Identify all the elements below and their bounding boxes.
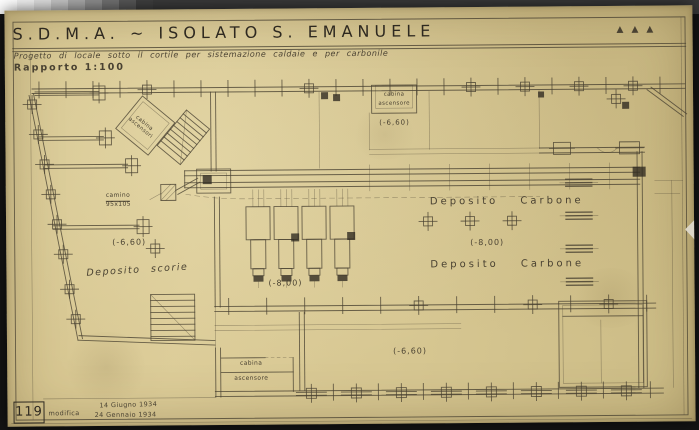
level-label-upper-court: (-6,60) — [379, 120, 410, 128]
boiler — [302, 189, 327, 287]
left-wall — [23, 82, 215, 346]
drawing-title: S.D.M.A. ~ ISOLATO S. EMANUELE — [12, 22, 435, 43]
top-elevator-room — [371, 85, 416, 113]
sheet-number-box: 119 — [13, 401, 44, 423]
stairs-top-left — [157, 110, 209, 165]
room-label-deposito-carbone-upper: Deposito Carbone — [430, 195, 584, 207]
revision-label: modifica — [49, 410, 80, 417]
hall-walls — [211, 92, 221, 348]
level-label-lower-court: (-6,60) — [393, 347, 427, 356]
boiler — [246, 190, 271, 288]
drawing-paper: S.D.M.A. ~ ISOLATO S. EMANUELE ▲▲▲ Proge… — [4, 5, 695, 426]
room-label-cabina-top: cabina — [373, 91, 415, 97]
plan-layer: S.D.M.A. ~ ISOLATO S. EMANUELE ▲▲▲ Proge… — [4, 5, 695, 426]
level-label-scorie: (-6,60) — [112, 239, 146, 248]
level-label-carbone: (-8,00) — [470, 239, 504, 248]
room-label-ascensore-top: ascensore — [373, 100, 415, 106]
coal-deposit-area — [369, 87, 689, 390]
boilers-group — [246, 189, 356, 288]
bottom-right-room — [559, 301, 648, 388]
border-frame — [8, 17, 691, 424]
bottom-elevator-room — [216, 347, 294, 397]
date-original: 14 Giugno 1934 — [99, 401, 157, 410]
scanned-drawing-photo: { "photo": { "background": "#141414", "t… — [0, 0, 699, 430]
room-label-cabina-bottom: cabina — [225, 361, 277, 368]
date-revision: 24 Gennaio 1934 — [95, 412, 157, 420]
room-label-ascensore-bottom: ascensore — [223, 376, 279, 383]
stairs-bottom — [151, 294, 195, 340]
chimney-vestibule — [150, 169, 231, 201]
level-label-boiler-room: (-8,00) — [268, 279, 302, 288]
camino-dimensions: 95x105 — [106, 202, 131, 209]
title-triangle-marks: ▲▲▲ — [617, 26, 662, 36]
scale-label: Rapporto 1:100 — [14, 63, 125, 74]
room-label-deposito-carbone-lower: Deposito Carbone — [430, 258, 584, 270]
